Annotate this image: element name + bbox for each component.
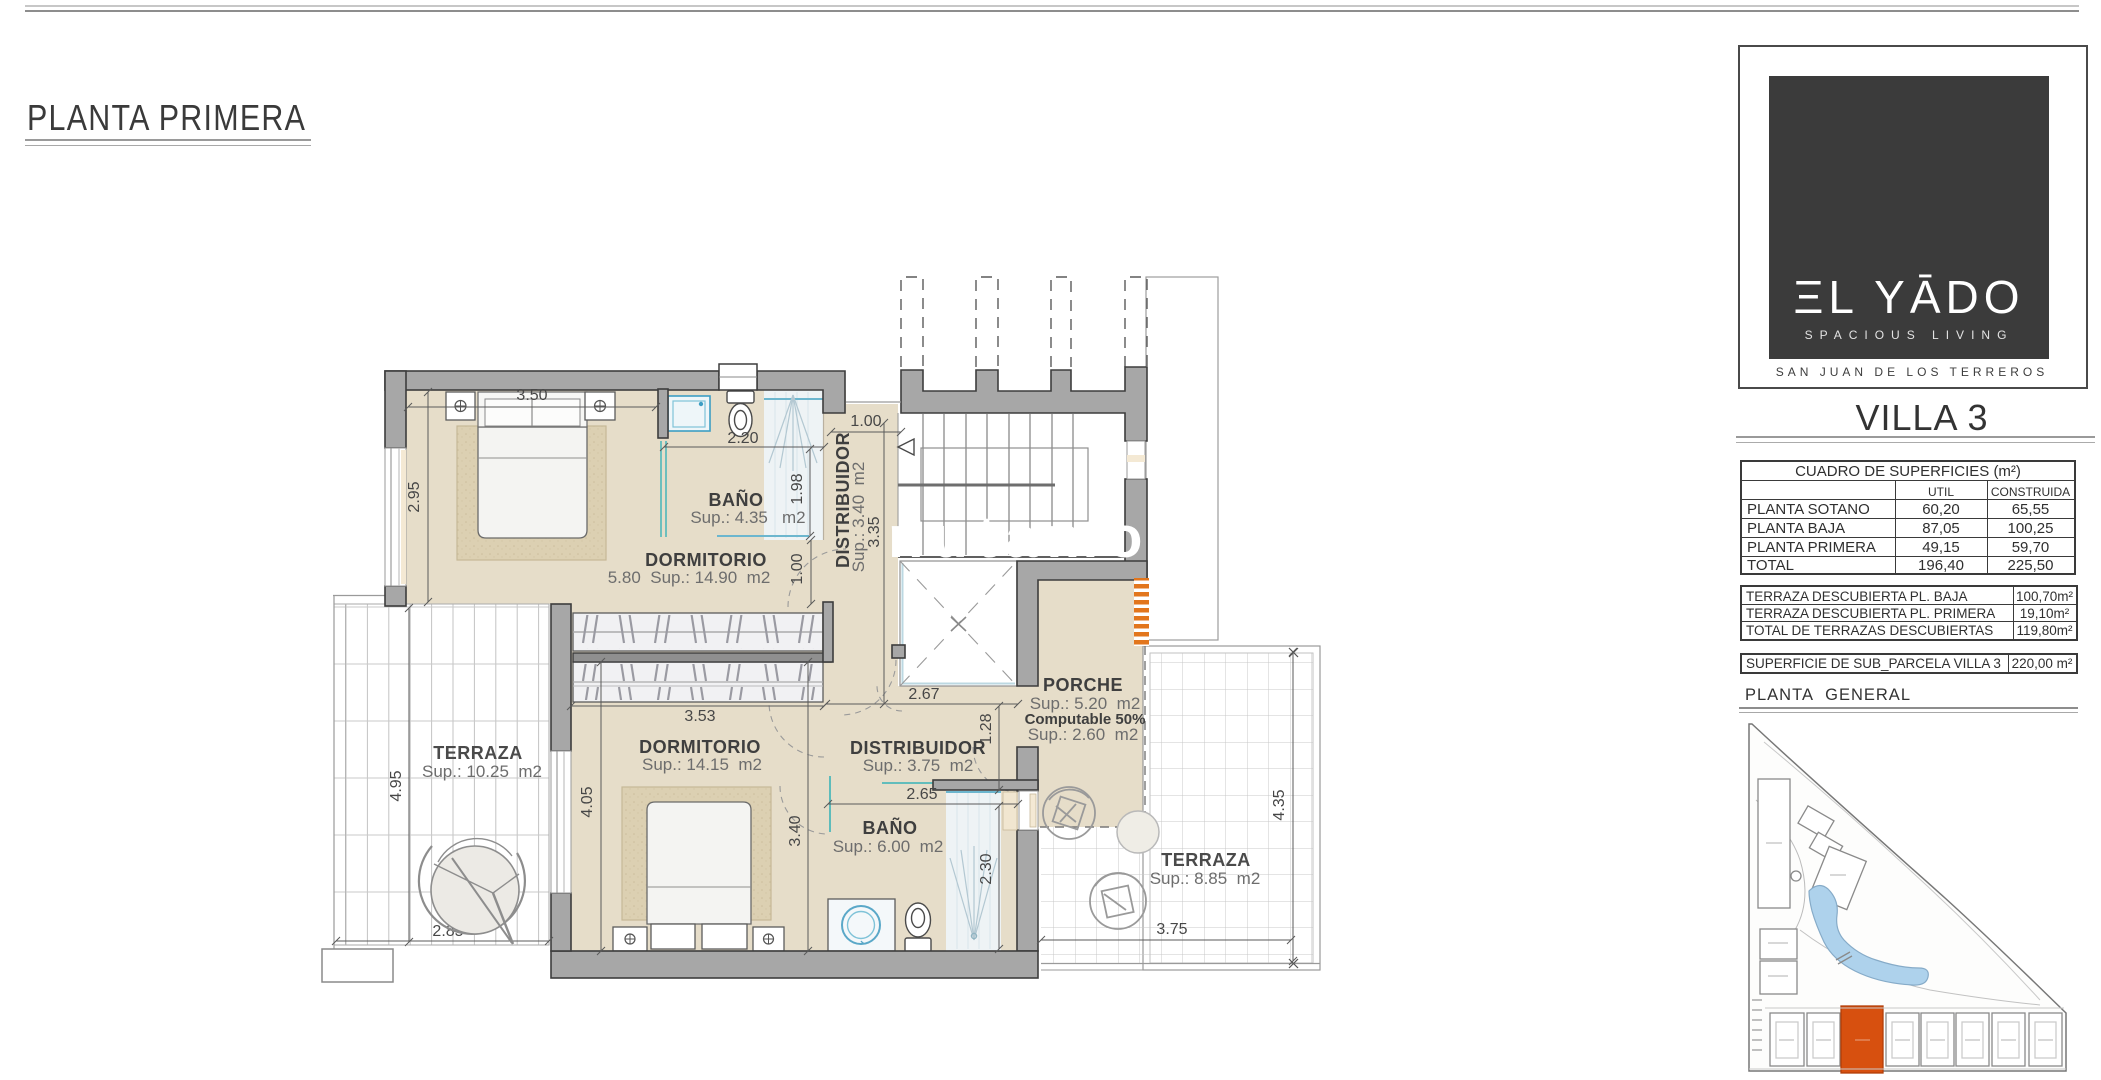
svg-text:Sup.: 3.40 m2: Sup.: 3.40 m2 bbox=[849, 462, 868, 573]
svg-text:Sup.: 2.60 m2: Sup.: 2.60 m2 bbox=[1028, 725, 1139, 744]
svg-text:DORMITORIO: DORMITORIO bbox=[645, 550, 767, 570]
svg-text:2.30: 2.30 bbox=[978, 853, 995, 884]
svg-text:Sup.: 10.25 m2: Sup.: 10.25 m2 bbox=[422, 762, 542, 781]
svg-text:Sup.: 14.15 m2: Sup.: 14.15 m2 bbox=[642, 755, 762, 774]
svg-text:3.53: 3.53 bbox=[684, 708, 715, 725]
svg-text:Sup.: 6.00 m2: Sup.: 6.00 m2 bbox=[833, 837, 944, 856]
svg-text:TERRAZA: TERRAZA bbox=[1161, 850, 1251, 870]
svg-text:1.98: 1.98 bbox=[789, 473, 806, 504]
svg-text:DISTRIBUIDOR: DISTRIBUIDOR bbox=[850, 738, 986, 758]
svg-text:2.20: 2.20 bbox=[727, 430, 758, 447]
svg-text:PORCHE: PORCHE bbox=[1043, 675, 1123, 695]
svg-text:3.50: 3.50 bbox=[516, 387, 547, 404]
svg-text:3.40: 3.40 bbox=[787, 815, 804, 846]
svg-text:4.35: 4.35 bbox=[1271, 789, 1288, 820]
svg-text:4.05: 4.05 bbox=[579, 786, 596, 817]
svg-text:5.80 Sup.: 14.90 m2: 5.80 Sup.: 14.90 m2 bbox=[608, 568, 771, 587]
svg-text:4.95: 4.95 bbox=[388, 770, 405, 801]
svg-text:TERRAZA: TERRAZA bbox=[433, 743, 523, 763]
svg-text:2.67: 2.67 bbox=[908, 686, 939, 703]
svg-text:DORMITORIO: DORMITORIO bbox=[639, 737, 761, 757]
svg-text:Sup.: 4.35 m2: Sup.: 4.35 m2 bbox=[690, 508, 805, 527]
svg-text:2.65: 2.65 bbox=[906, 786, 937, 803]
svg-text:nutamo: nutamo bbox=[888, 505, 1151, 570]
svg-text:3.75: 3.75 bbox=[1156, 921, 1187, 938]
svg-text:Sup.: 3.75 m2: Sup.: 3.75 m2 bbox=[863, 756, 974, 775]
svg-text:1.00: 1.00 bbox=[850, 413, 881, 430]
svg-text:2.95: 2.95 bbox=[406, 481, 423, 512]
svg-text:BAÑO: BAÑO bbox=[709, 489, 764, 510]
svg-text:1.00: 1.00 bbox=[789, 553, 806, 584]
svg-text:3.35: 3.35 bbox=[866, 516, 883, 547]
svg-text:Sup.: 8.85 m2: Sup.: 8.85 m2 bbox=[1150, 869, 1261, 888]
svg-text:BAÑO: BAÑO bbox=[863, 817, 918, 838]
